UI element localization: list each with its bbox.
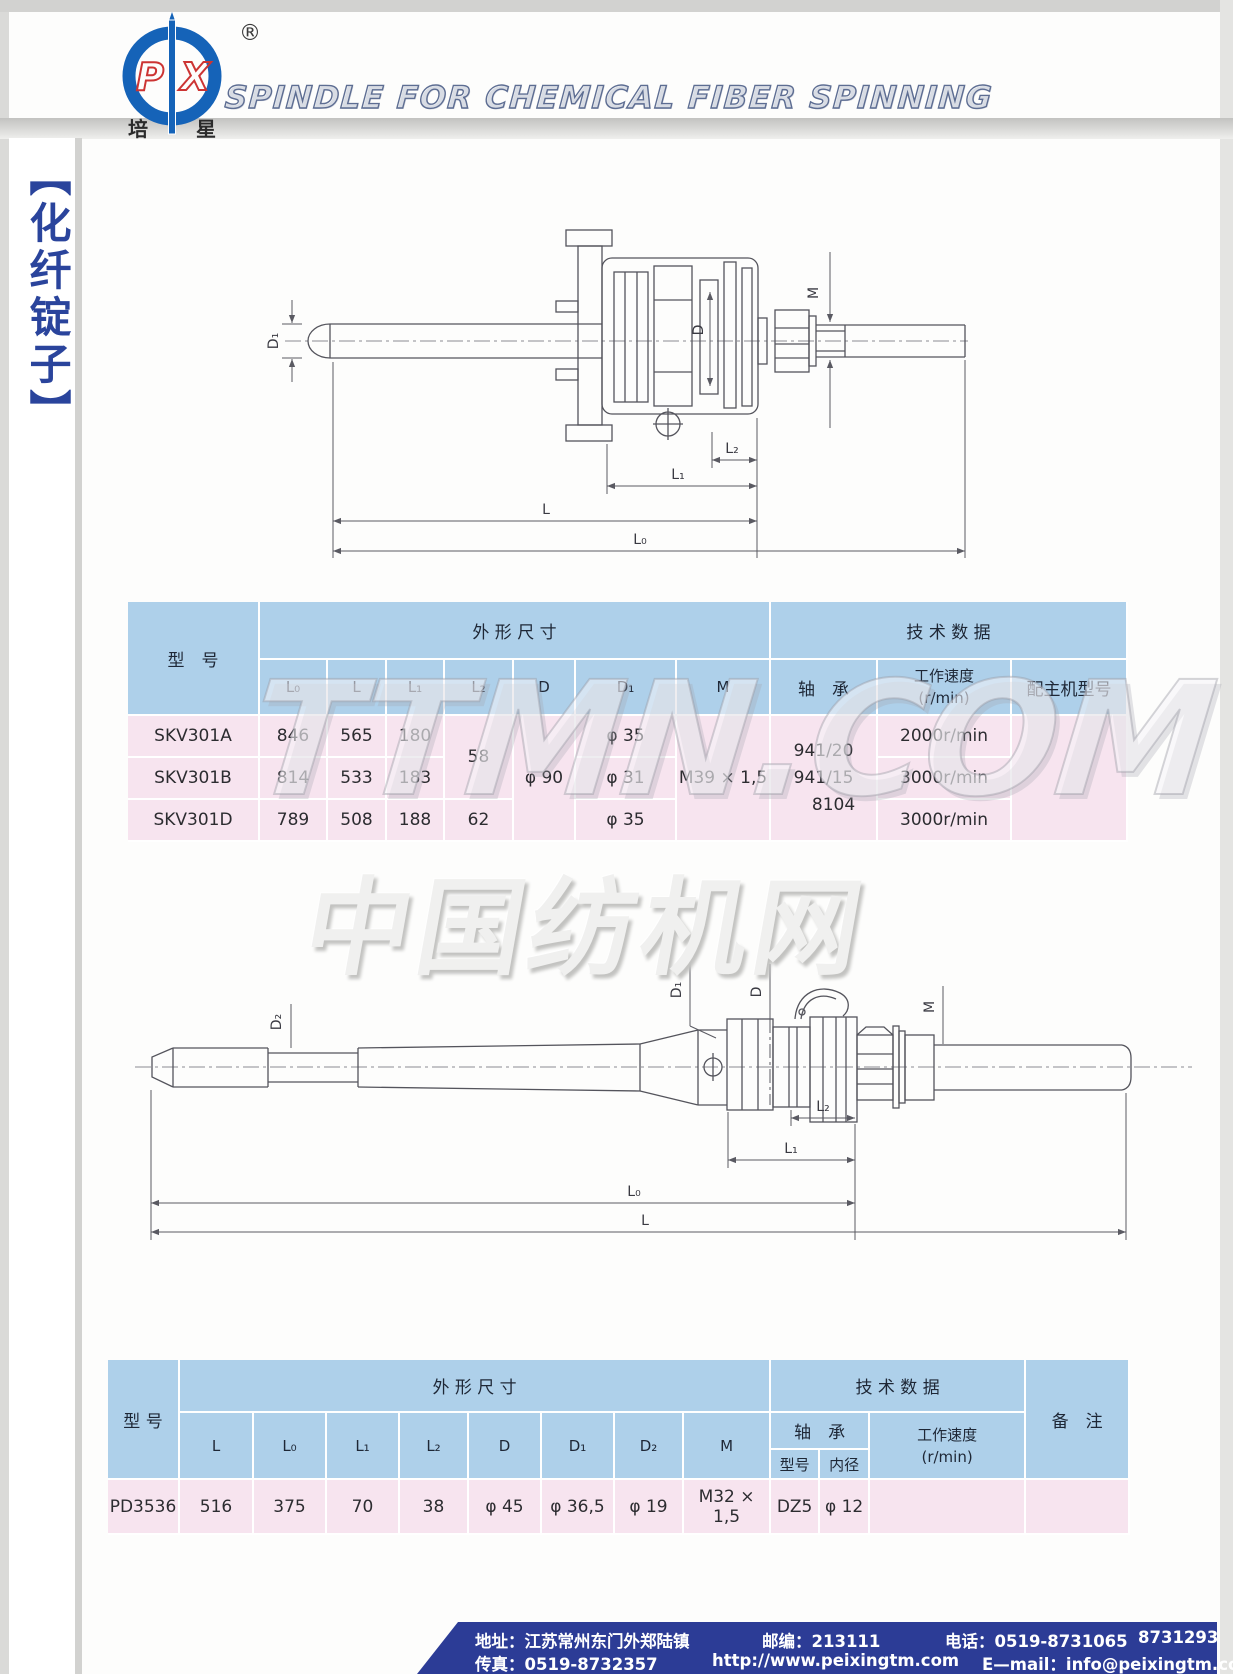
t2-col-d: D — [469, 1413, 542, 1480]
logo-letter-p: P — [136, 55, 164, 99]
t1-r3-model: SKV301D — [128, 800, 260, 842]
footer-tel2: 8731293 — [1138, 1628, 1218, 1647]
spindle-rod-icon — [169, 12, 176, 134]
dim-label-l0: L₀ — [627, 1184, 641, 1200]
t2-col-m: M — [684, 1413, 771, 1480]
t2-row-l0: 375 — [254, 1480, 327, 1535]
t2-col-bearing-model: 型号 — [771, 1450, 820, 1480]
t2-row-l1: 70 — [327, 1480, 400, 1535]
sidebar-strip: 【化纤锭子】 — [9, 138, 82, 1674]
t2-row-l: 516 — [180, 1480, 254, 1535]
brand-logo-icon: P X ® 培 星 — [92, 12, 272, 142]
t1-r1-model: SKV301A — [128, 716, 260, 758]
dimension-lines-1 — [282, 252, 965, 558]
t2-row-bz-bore: φ 12 — [820, 1480, 870, 1535]
footer-zip: 邮编：213111 — [762, 1628, 880, 1652]
dim-label-d2: D₂ — [269, 1014, 285, 1030]
table-row: PD3536 516 375 70 38 φ 45 φ 36,5 φ 19 M3… — [108, 1480, 1130, 1535]
t2-col-bearing-bore: 内径 — [820, 1450, 870, 1480]
dim-label-l1: L₁ — [784, 1141, 797, 1157]
t2-col-speed: 工作速度 (r/min) — [870, 1413, 1026, 1480]
dim-label-m: M — [806, 287, 822, 299]
dim-label-d1: D₁ — [266, 333, 282, 349]
footer-address: 地址：江苏常州东门外郑陆镇 — [475, 1628, 690, 1652]
brand-name-cn-left: 培 — [128, 117, 148, 141]
scan-edge-right — [1220, 0, 1233, 1674]
t2-col-l0: L₀ — [254, 1413, 327, 1480]
dim-label-d: D — [691, 325, 707, 336]
spindle-drawing-1: D₁ D M L₂ L₁ L L₀ — [240, 180, 980, 570]
spindle-body-1 — [308, 230, 965, 441]
dim-label-m: M — [922, 1001, 938, 1013]
dim-label-l: L — [542, 502, 550, 518]
t2-row-remark — [1026, 1480, 1130, 1535]
t2-col-l1: L₁ — [327, 1413, 400, 1480]
registered-mark: ® — [239, 21, 261, 46]
t2-row-speed — [870, 1480, 1026, 1535]
dim-label-l: L — [641, 1213, 649, 1229]
spec-table-2: 型 号 外 形 尺 寸 技 术 数 据 备 注 L L₀ L₁ L₂ D D₁ … — [108, 1360, 1130, 1535]
footer-fax: 传真：0519-8732357 — [475, 1651, 658, 1674]
spindle-drawing-2: D₂ D₁ D M L₂ L₁ L₀ L — [100, 950, 1200, 1280]
t2-header-dims: 外 形 尺 寸 — [180, 1360, 771, 1413]
scan-edge-left — [0, 12, 9, 1674]
watermark-cftm: 中国纺机网 — [294, 842, 881, 996]
t2-header-tech: 技 术 数 据 — [771, 1360, 1026, 1413]
t2-col-d1: D₁ — [542, 1413, 615, 1480]
t2-row-d2: φ 19 — [615, 1480, 684, 1535]
page-title: SPINDLE FOR CHEMICAL FIBER SPINNING — [224, 80, 907, 116]
watermark-ttmn: TTMN.COM — [242, 648, 1181, 832]
brand-name-cn-right: 星 — [196, 117, 216, 141]
catalog-page: P X ® 培 星 SPINDLE FOR CHEMICAL FIBER SPI… — [0, 0, 1233, 1674]
t2-row-model: PD3536 — [108, 1480, 180, 1535]
logo-letter-x: X — [178, 55, 211, 99]
t2-header-remark: 备 注 — [1026, 1360, 1130, 1480]
footer-email: E—mail：info@peixingtm.com — [982, 1651, 1233, 1674]
t2-col-l2: L₂ — [400, 1413, 469, 1480]
t2-row-d1: φ 36,5 — [542, 1480, 615, 1535]
footer-website: http://www.peixingtm.com — [712, 1651, 959, 1670]
sidebar-label: 【化纤锭子】 — [17, 154, 78, 436]
footer-tel: 电话：0519-8731065 — [945, 1628, 1128, 1652]
t2-row-l2: 38 — [400, 1480, 469, 1535]
dim-label-l0: L₀ — [633, 532, 647, 548]
t2-header-model: 型 号 — [108, 1360, 180, 1480]
t2-col-bearing: 轴 承 — [771, 1413, 870, 1450]
scan-edge-top — [0, 0, 1233, 12]
t2-speed-line1: 工作速度 — [870, 1424, 1024, 1446]
t1-header-model: 型 号 — [128, 602, 260, 716]
t2-col-d2: D₂ — [615, 1413, 684, 1480]
t2-speed-line2: (r/min) — [870, 1446, 1024, 1468]
dim-label-l2: L₂ — [816, 1099, 829, 1115]
spindle-body-2 — [152, 989, 1131, 1122]
footer-banner: 地址：江苏常州东门外郑陆镇 邮编：213111 电话：0519-8731065 … — [0, 1622, 1233, 1674]
dim-label-l1: L₁ — [671, 467, 684, 483]
t2-col-l: L — [180, 1413, 254, 1480]
dim-label-l2: L₂ — [725, 441, 738, 457]
t2-row-d: φ 45 — [469, 1480, 542, 1535]
t1-r2-model: SKV301B — [128, 758, 260, 800]
t2-row-bz-model: DZ5 — [771, 1480, 820, 1535]
t2-row-m: M32 × 1,5 — [684, 1480, 771, 1535]
